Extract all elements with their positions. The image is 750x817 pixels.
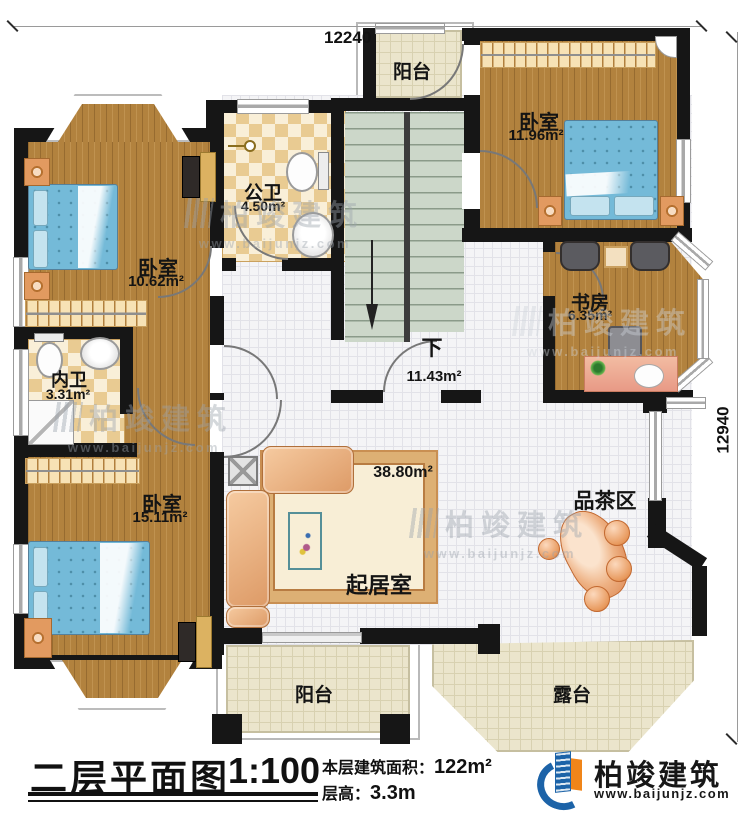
room-label-stairs: 下	[422, 332, 443, 362]
pillow	[614, 196, 654, 216]
window	[14, 350, 28, 435]
tv-shelf	[196, 616, 212, 668]
wall	[331, 98, 344, 340]
wall	[692, 566, 707, 636]
nightstand	[24, 272, 50, 300]
armchair	[630, 241, 670, 271]
closet	[25, 300, 147, 327]
desk-chair	[634, 364, 664, 388]
sink	[292, 212, 334, 258]
wall	[14, 326, 131, 339]
room-area-bedroom-tr: 11.96m²	[508, 127, 563, 144]
window	[698, 280, 708, 358]
pillar	[478, 624, 500, 654]
logo-building-orange	[571, 758, 582, 791]
wall	[441, 390, 481, 403]
wall	[210, 296, 224, 345]
side-table	[228, 456, 258, 486]
dimension-line-top	[12, 26, 702, 27]
nightstand	[24, 618, 52, 658]
light-fixture	[244, 140, 256, 152]
room-area-bedroom-bl: 15.11m²	[132, 509, 187, 526]
logo-building-blue	[555, 751, 571, 793]
pillar	[212, 714, 242, 744]
sliding-door	[262, 632, 362, 643]
wall	[210, 452, 224, 655]
ottoman	[606, 556, 632, 582]
ottoman	[604, 520, 630, 546]
closet	[480, 42, 656, 68]
sofa	[226, 490, 270, 608]
brand-logo-icon	[540, 752, 590, 804]
dimension-line-right	[737, 32, 738, 742]
floor-height-value: 3.3m	[370, 782, 416, 804]
ottoman	[584, 586, 610, 612]
wall	[543, 296, 555, 403]
dimension-top-value: 12240	[324, 28, 371, 48]
nightstand	[538, 196, 562, 226]
wall	[210, 628, 262, 644]
door-opening	[462, 45, 480, 95]
floor-area-value: 122m²	[434, 756, 492, 778]
window	[238, 100, 308, 113]
cabinet	[608, 326, 642, 358]
floor-height-info: 层高：3.3m	[322, 780, 416, 805]
wall	[14, 443, 137, 457]
shower	[28, 400, 74, 445]
room-area-stairs: 11.43m²	[406, 368, 461, 385]
wall	[210, 393, 224, 400]
toilet-tank	[318, 152, 329, 190]
tv-cabinet	[182, 156, 200, 198]
window	[14, 545, 28, 613]
window	[667, 398, 705, 408]
nightstand	[660, 196, 684, 226]
window	[677, 140, 690, 202]
room-label-tea-area: 品茶区	[574, 485, 637, 515]
wall	[360, 628, 488, 644]
floor-area-label: 本层建筑面积：	[322, 760, 434, 777]
dimension-right-value: 12940	[714, 406, 734, 453]
toilet-tank	[34, 333, 64, 342]
title-underline	[28, 800, 318, 802]
title-underline	[28, 792, 318, 796]
room-area-living: 38.80m²	[373, 464, 433, 482]
stair-direction-line	[371, 240, 373, 306]
tv-cabinet	[178, 622, 196, 662]
room-label-living: 起居室	[346, 568, 412, 600]
pillow	[33, 190, 48, 226]
stair-divider	[404, 112, 410, 342]
wall	[222, 258, 236, 271]
dimension-tick	[725, 733, 737, 745]
light-stem	[228, 145, 245, 147]
wall	[120, 326, 133, 414]
brand-website: www.baijunjz.com	[594, 786, 730, 801]
room-label-balcony-top: 阳台	[393, 57, 431, 84]
plant	[590, 360, 606, 376]
wall	[331, 390, 383, 403]
dimension-tick	[725, 31, 737, 43]
pillow	[33, 547, 48, 587]
room-area-study: 6.35m²	[568, 307, 612, 323]
bed-sheet	[100, 543, 148, 633]
nightstand	[24, 158, 50, 186]
ottoman	[538, 538, 560, 560]
pillar	[380, 714, 410, 744]
floor-area-info: 本层建筑面积：122m²	[322, 754, 492, 779]
stair-down-arrow	[366, 304, 378, 330]
bed-sheet	[565, 170, 656, 197]
sofa-armrest	[226, 606, 270, 628]
armchair	[560, 241, 600, 271]
stair-flight-right	[410, 112, 464, 332]
floor-plan-sheet: 12240 12940	[0, 0, 750, 817]
bed-sheet	[78, 186, 116, 268]
room-label-balcony-bottom: 阳台	[295, 680, 333, 707]
side-table	[604, 246, 628, 268]
closet	[25, 458, 140, 484]
floor-height-label: 层高：	[322, 786, 370, 803]
room-area-bath-inner: 3.31m²	[46, 386, 90, 402]
wall	[643, 398, 667, 413]
sheet-scale: 1:100	[228, 750, 320, 792]
room-label-terrace: 露台	[553, 680, 591, 707]
tv-shelf	[200, 152, 216, 202]
wall	[464, 95, 480, 153]
room-area-bath-public: 4.50m²	[241, 198, 285, 214]
wall	[462, 228, 692, 242]
wall	[331, 98, 480, 111]
wall	[543, 241, 555, 252]
sofa	[262, 446, 354, 494]
door-opening	[462, 153, 480, 209]
room-area-bedroom-tl: 10.62m²	[128, 273, 184, 290]
toilet	[286, 152, 318, 192]
pillow	[33, 230, 48, 268]
coffee-table	[288, 512, 322, 570]
window	[650, 412, 661, 500]
pillow	[570, 196, 610, 216]
